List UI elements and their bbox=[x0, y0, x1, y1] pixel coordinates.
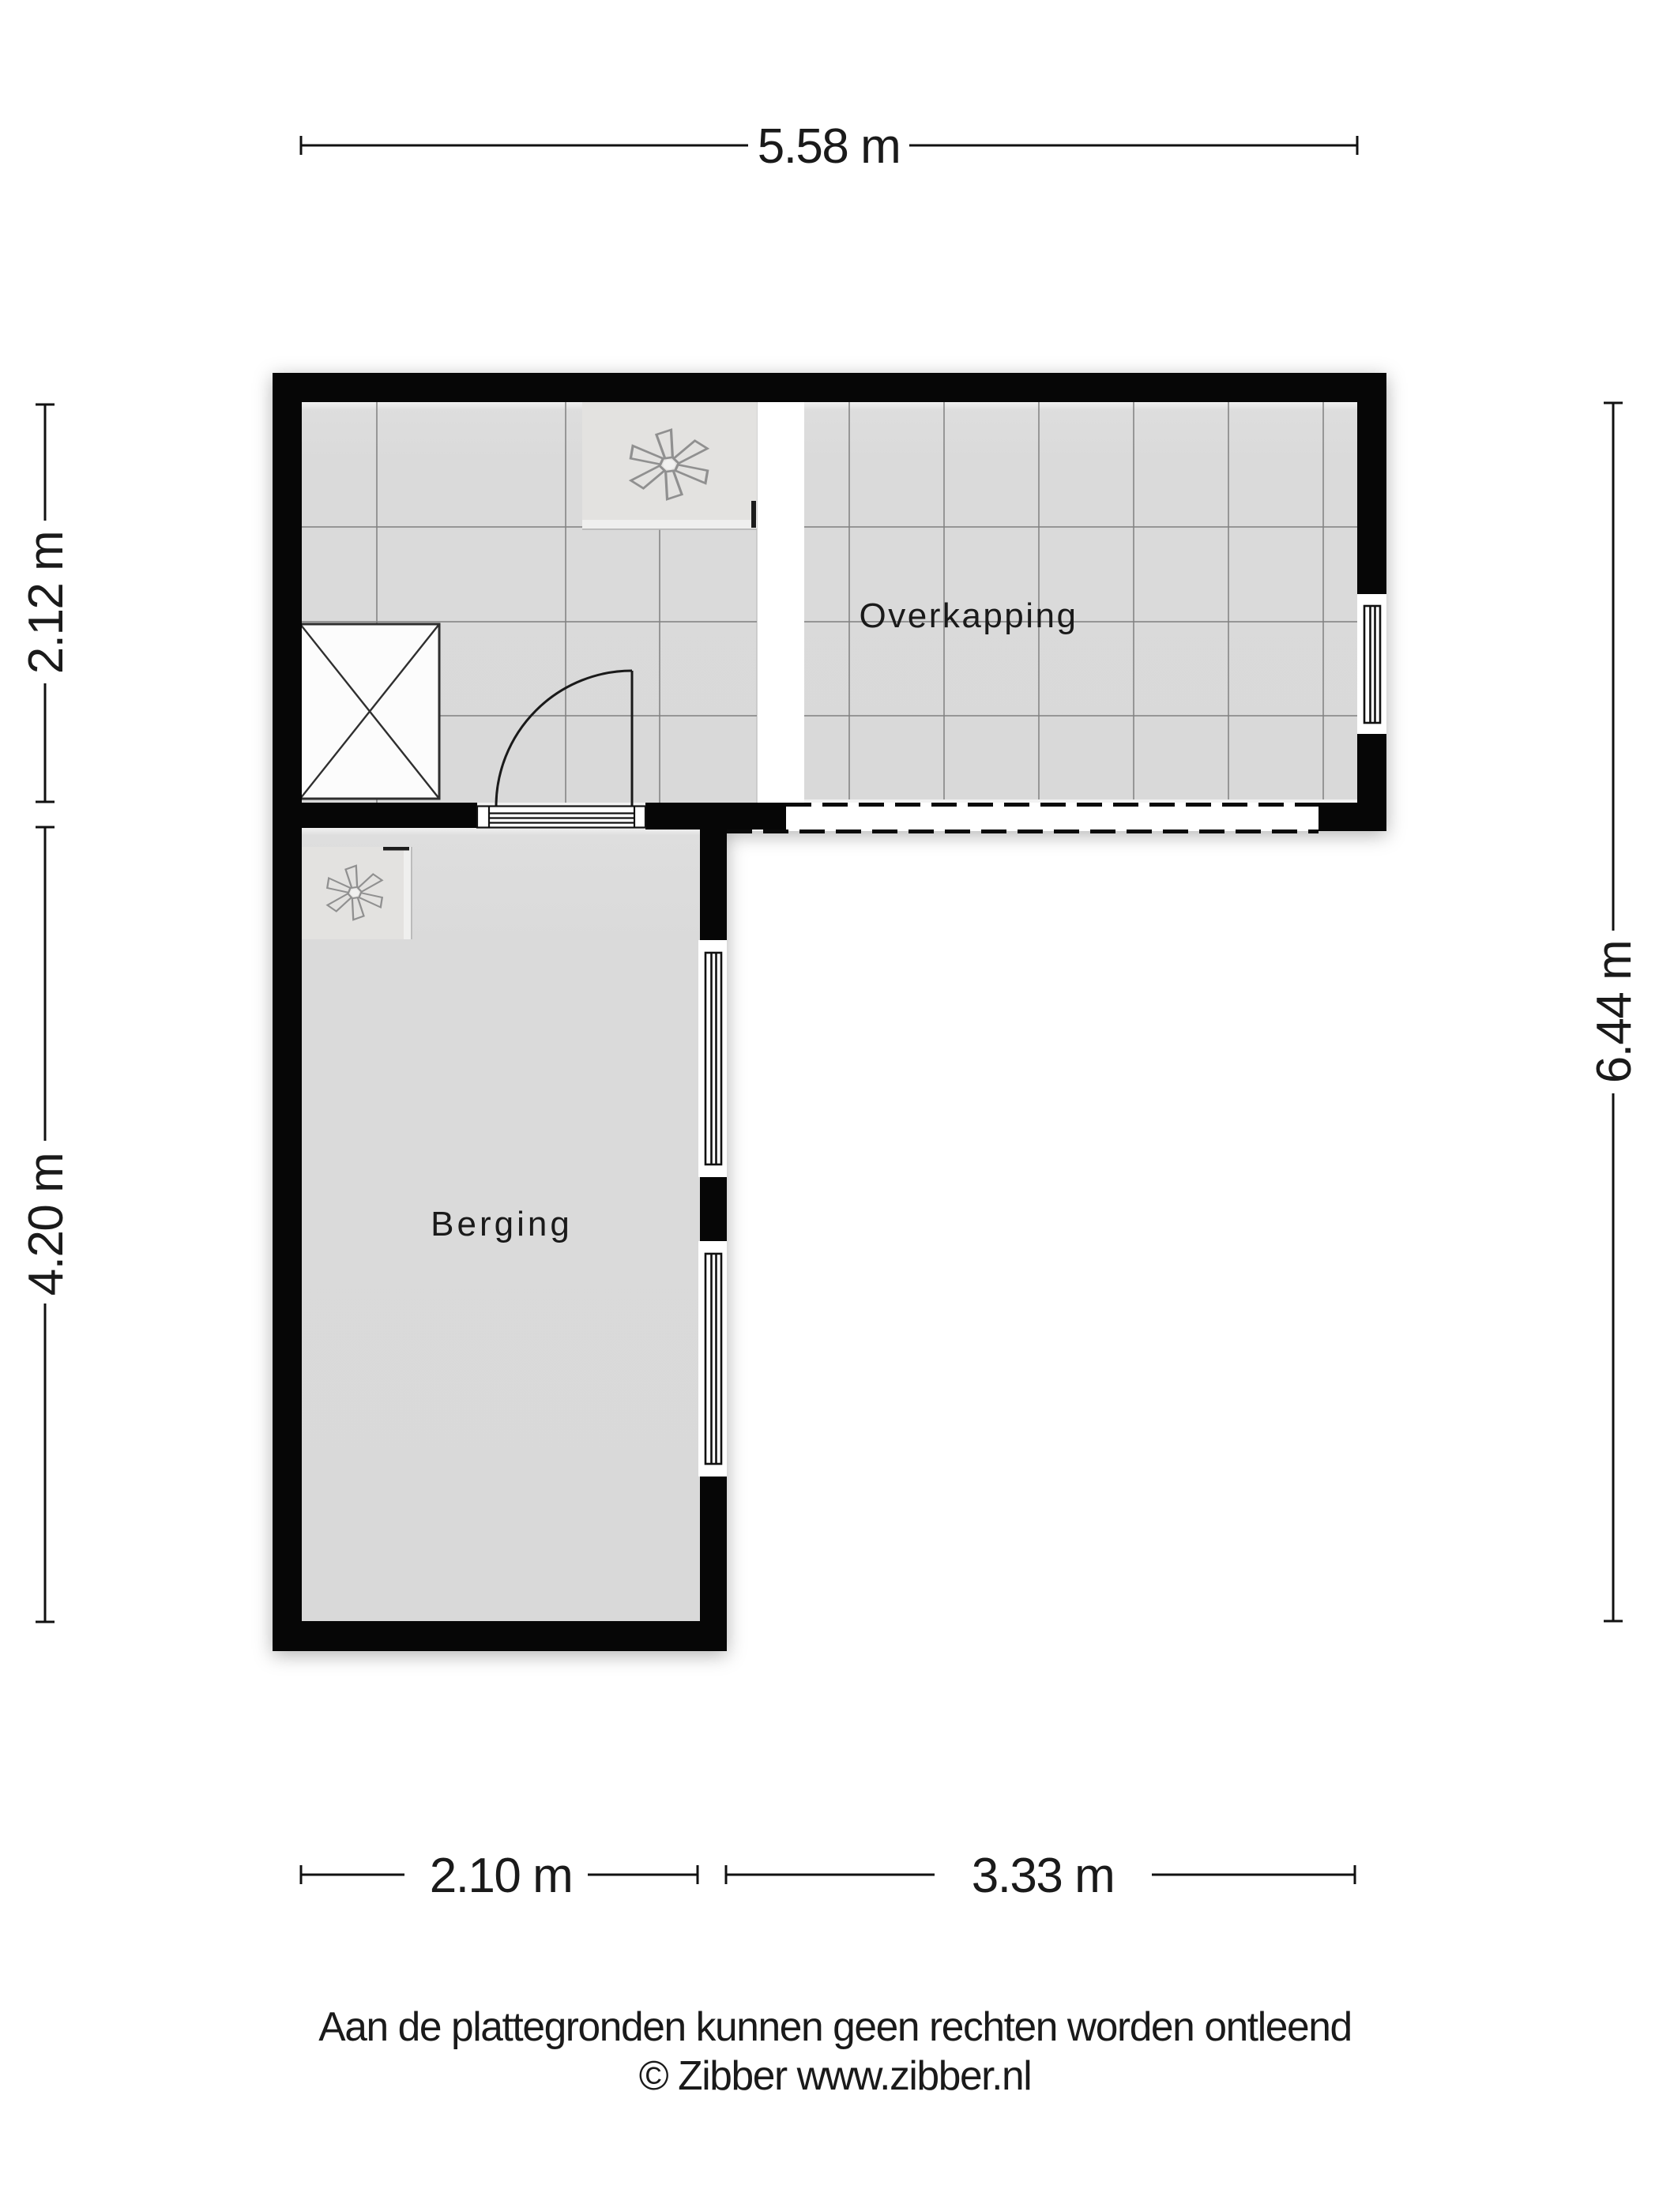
svg-text:Berging: Berging bbox=[431, 1205, 573, 1243]
svg-text:4.20 m: 4.20 m bbox=[19, 1153, 73, 1296]
svg-text:© Zibber www.zibber.nl: © Zibber www.zibber.nl bbox=[639, 2052, 1032, 2098]
svg-text:2.12 m: 2.12 m bbox=[19, 532, 73, 675]
svg-text:3.33 m: 3.33 m bbox=[972, 1849, 1115, 1903]
svg-text:Aan de plattegronden kunnen ge: Aan de plattegronden kunnen geen rechten… bbox=[318, 2003, 1351, 2049]
svg-text:Overkapping: Overkapping bbox=[860, 596, 1078, 635]
svg-text:6.44 m: 6.44 m bbox=[1587, 941, 1642, 1084]
svg-text:5.58 m: 5.58 m bbox=[758, 119, 901, 174]
svg-text:2.10 m: 2.10 m bbox=[430, 1849, 573, 1903]
